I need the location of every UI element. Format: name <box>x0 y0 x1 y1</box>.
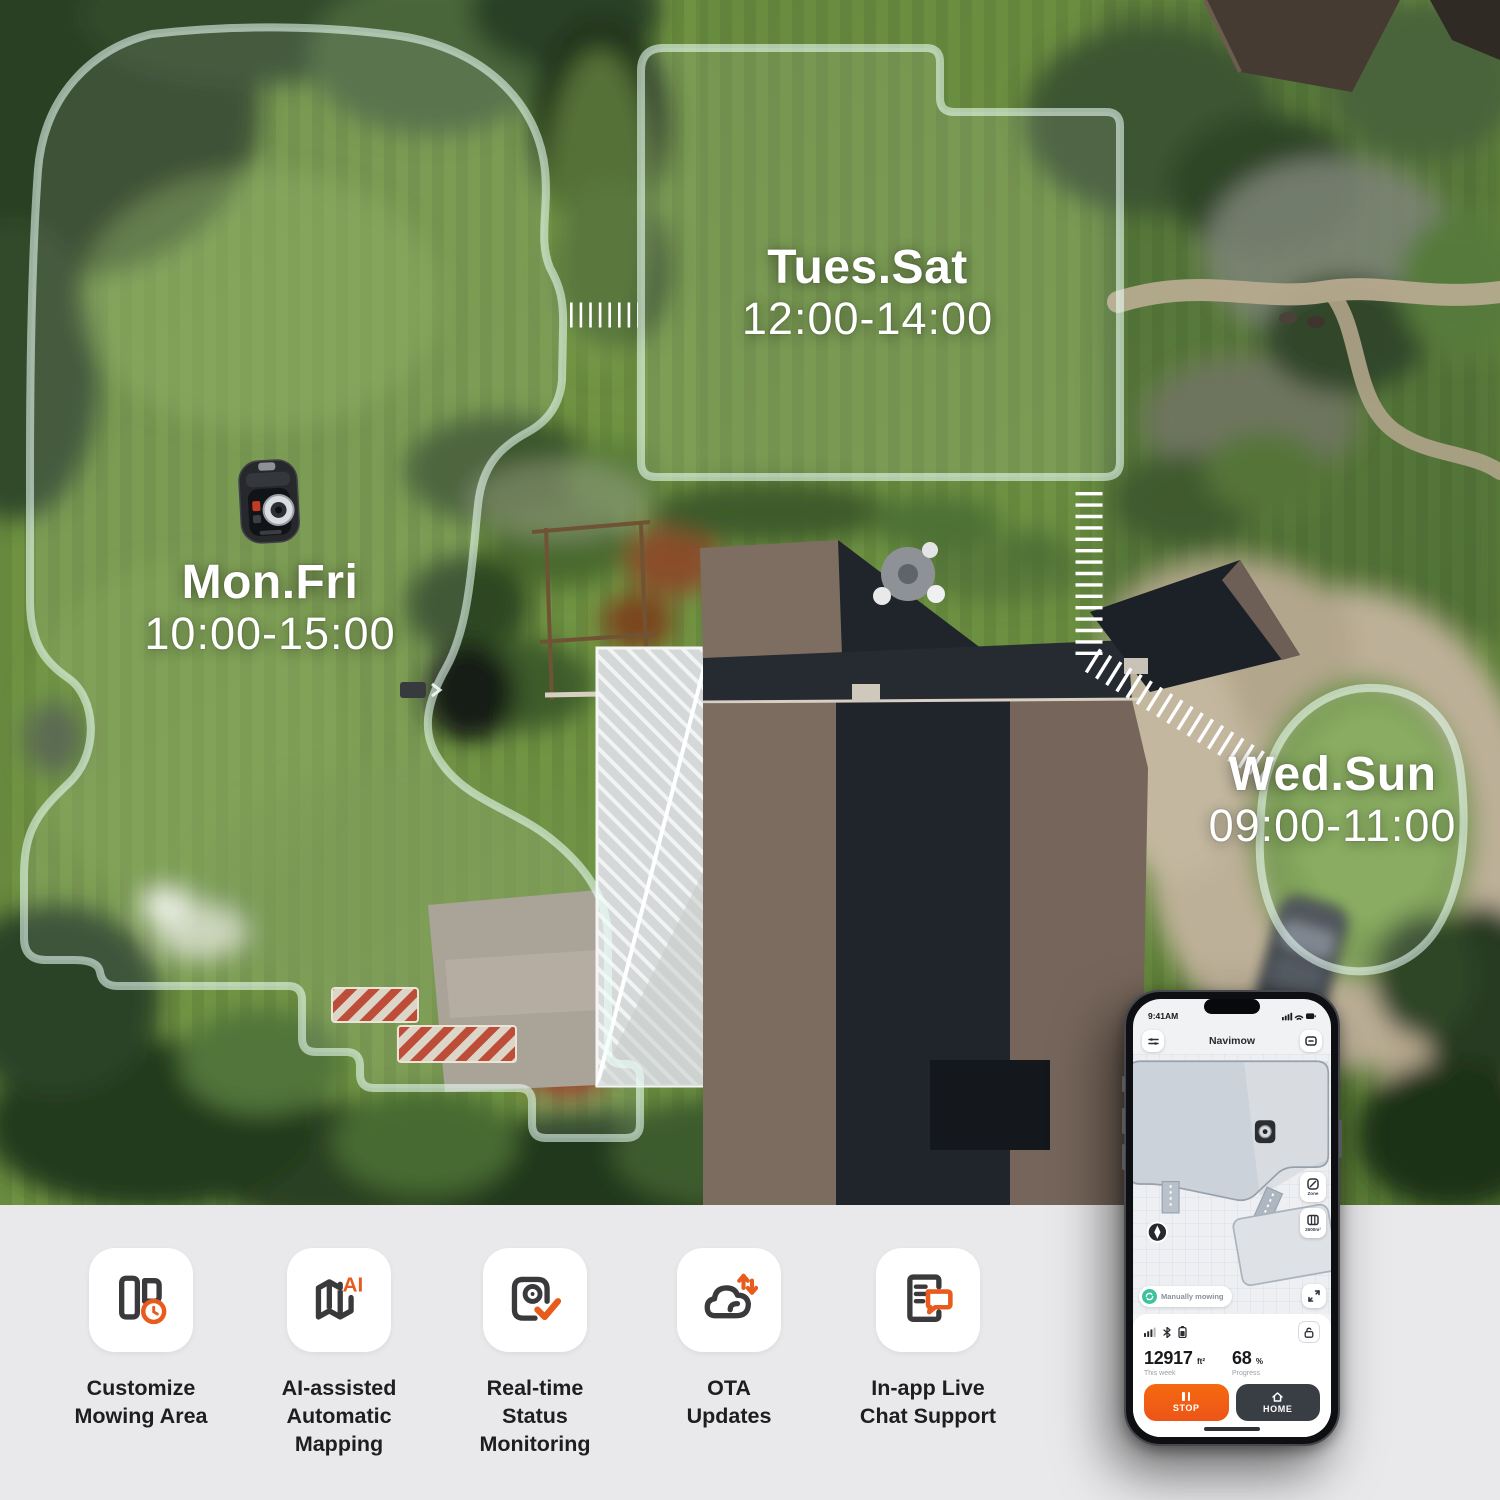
progress-value: 68 <box>1232 1348 1251 1368</box>
feature-tile <box>876 1248 980 1352</box>
camera-check-icon <box>506 1271 564 1329</box>
feature-live-chat: In-app Live Chat Support <box>823 1248 1033 1431</box>
battery-icon <box>1178 1326 1187 1338</box>
area-unit: ft² <box>1197 1357 1205 1366</box>
map-dock-marker <box>1148 1223 1167 1242</box>
map-icon <box>1307 1214 1319 1226</box>
stats-row: 12917 ft² This week 68 % Progress <box>1144 1348 1320 1377</box>
stop-button-label: STOP <box>1173 1403 1200 1413</box>
bluetooth-icon <box>1163 1327 1171 1338</box>
feature-tile: AI <box>287 1248 391 1352</box>
area-button-label: 2600m² <box>1305 1227 1321 1232</box>
lock-button[interactable] <box>1298 1321 1320 1343</box>
app-map-view[interactable]: Zone 2600m² <box>1133 1054 1331 1314</box>
feature-ota-updates: OTA Updates <box>624 1248 834 1431</box>
svg-text:AI: AI <box>343 1274 364 1297</box>
mowing-status-text: Manually mowing <box>1161 1292 1224 1301</box>
recenter-button[interactable] <box>1302 1284 1326 1308</box>
map-buttons: Zone 2600m² <box>1300 1172 1326 1238</box>
zone-button[interactable]: Zone <box>1300 1172 1326 1202</box>
home-indicator[interactable] <box>1204 1427 1260 1431</box>
menu-button[interactable] <box>1142 1030 1164 1052</box>
progress-stat: 68 % Progress <box>1232 1348 1320 1377</box>
home-button-label: HOME <box>1263 1404 1292 1414</box>
map-ai-icon: AI <box>310 1271 368 1329</box>
action-buttons: STOP HOME <box>1144 1384 1320 1421</box>
zone-time: 10:00-15:00 <box>95 608 445 660</box>
feature-label: Real-time Status Monitoring <box>479 1375 590 1459</box>
phone-power-button <box>1339 1120 1342 1158</box>
map-bottom-row: Manually mowing <box>1139 1284 1326 1308</box>
feature-customize-mowing-area: Customize Mowing Area <box>36 1248 246 1431</box>
marketing-image: Mon.Fri 10:00-15:00 Tues.Sat 12:00-14:00… <box>0 0 1500 1500</box>
cloud-sync-icon <box>700 1271 758 1329</box>
app-screen: 9:41AM <box>1133 999 1331 1437</box>
filter-icon <box>1148 1037 1159 1046</box>
status-time: 9:41AM <box>1148 1011 1178 1021</box>
zone-days: Wed.Sun <box>1165 750 1500 800</box>
phone-volume-down <box>1122 1144 1125 1170</box>
robot-mower <box>238 459 300 544</box>
home-button[interactable]: HOME <box>1236 1384 1321 1421</box>
area-caption: This week <box>1144 1370 1232 1377</box>
feature-label: AI-assisted Automatic Mapping <box>282 1375 397 1459</box>
feature-ai-mapping: AI AI-assisted Automatic Mapping <box>234 1248 444 1459</box>
zone-label-wed-sun: Wed.Sun 09:00-11:00 <box>1165 750 1500 852</box>
app-nav-bar: Navimow <box>1133 1028 1331 1054</box>
expand-icon <box>1308 1290 1320 1302</box>
zone-days: Tues.Sat <box>690 243 1045 293</box>
mowing-status-pill[interactable]: Manually mowing <box>1139 1286 1232 1307</box>
feature-tile <box>483 1248 587 1352</box>
connectivity-row <box>1144 1321 1320 1343</box>
signal-icon <box>1144 1327 1156 1337</box>
zone-label-tues-sat: Tues.Sat 12:00-14:00 <box>690 243 1045 345</box>
control-panel: 12917 ft² This week 68 % Progress STOP <box>1133 1314 1331 1437</box>
chat-doc-icon <box>899 1271 957 1329</box>
home-icon <box>1272 1392 1283 1402</box>
feature-tile <box>677 1248 781 1352</box>
feature-label: In-app Live Chat Support <box>860 1375 996 1431</box>
area-value: 12917 <box>1144 1348 1193 1368</box>
chat-button[interactable] <box>1300 1030 1322 1052</box>
feature-label: OTA Updates <box>687 1375 772 1431</box>
zone-button-label: Zone <box>1308 1191 1319 1196</box>
zones-clock-icon <box>112 1271 170 1329</box>
feature-tile <box>89 1248 193 1352</box>
zone-label-mon-fri: Mon.Fri 10:00-15:00 <box>95 558 445 660</box>
zone-time: 09:00-11:00 <box>1165 800 1500 852</box>
app-title: Navimow <box>1209 1035 1255 1047</box>
zone-edit-icon <box>1307 1178 1319 1190</box>
status-icons <box>1282 1011 1316 1021</box>
pause-icon <box>1182 1392 1190 1401</box>
progress-unit: % <box>1256 1357 1263 1366</box>
map-robot-icon <box>1255 1120 1275 1143</box>
feature-label: Customize Mowing Area <box>75 1375 208 1431</box>
stop-button[interactable]: STOP <box>1144 1384 1229 1421</box>
area-stat: 12917 ft² This week <box>1144 1348 1232 1377</box>
phone-volume-up <box>1122 1108 1125 1134</box>
feature-status-monitoring: Real-time Status Monitoring <box>430 1248 640 1459</box>
message-icon <box>1305 1036 1317 1047</box>
progress-caption: Progress <box>1232 1370 1320 1377</box>
phone-mockup: 9:41AM <box>1124 990 1340 1446</box>
phone-mute-switch <box>1122 1076 1125 1092</box>
lock-icon <box>1304 1327 1314 1338</box>
zone-days: Mon.Fri <box>95 558 445 608</box>
dynamic-island <box>1204 999 1260 1014</box>
zone-time: 12:00-14:00 <box>690 293 1045 345</box>
sync-icon <box>1142 1289 1157 1304</box>
area-button[interactable]: 2600m² <box>1300 1208 1326 1238</box>
